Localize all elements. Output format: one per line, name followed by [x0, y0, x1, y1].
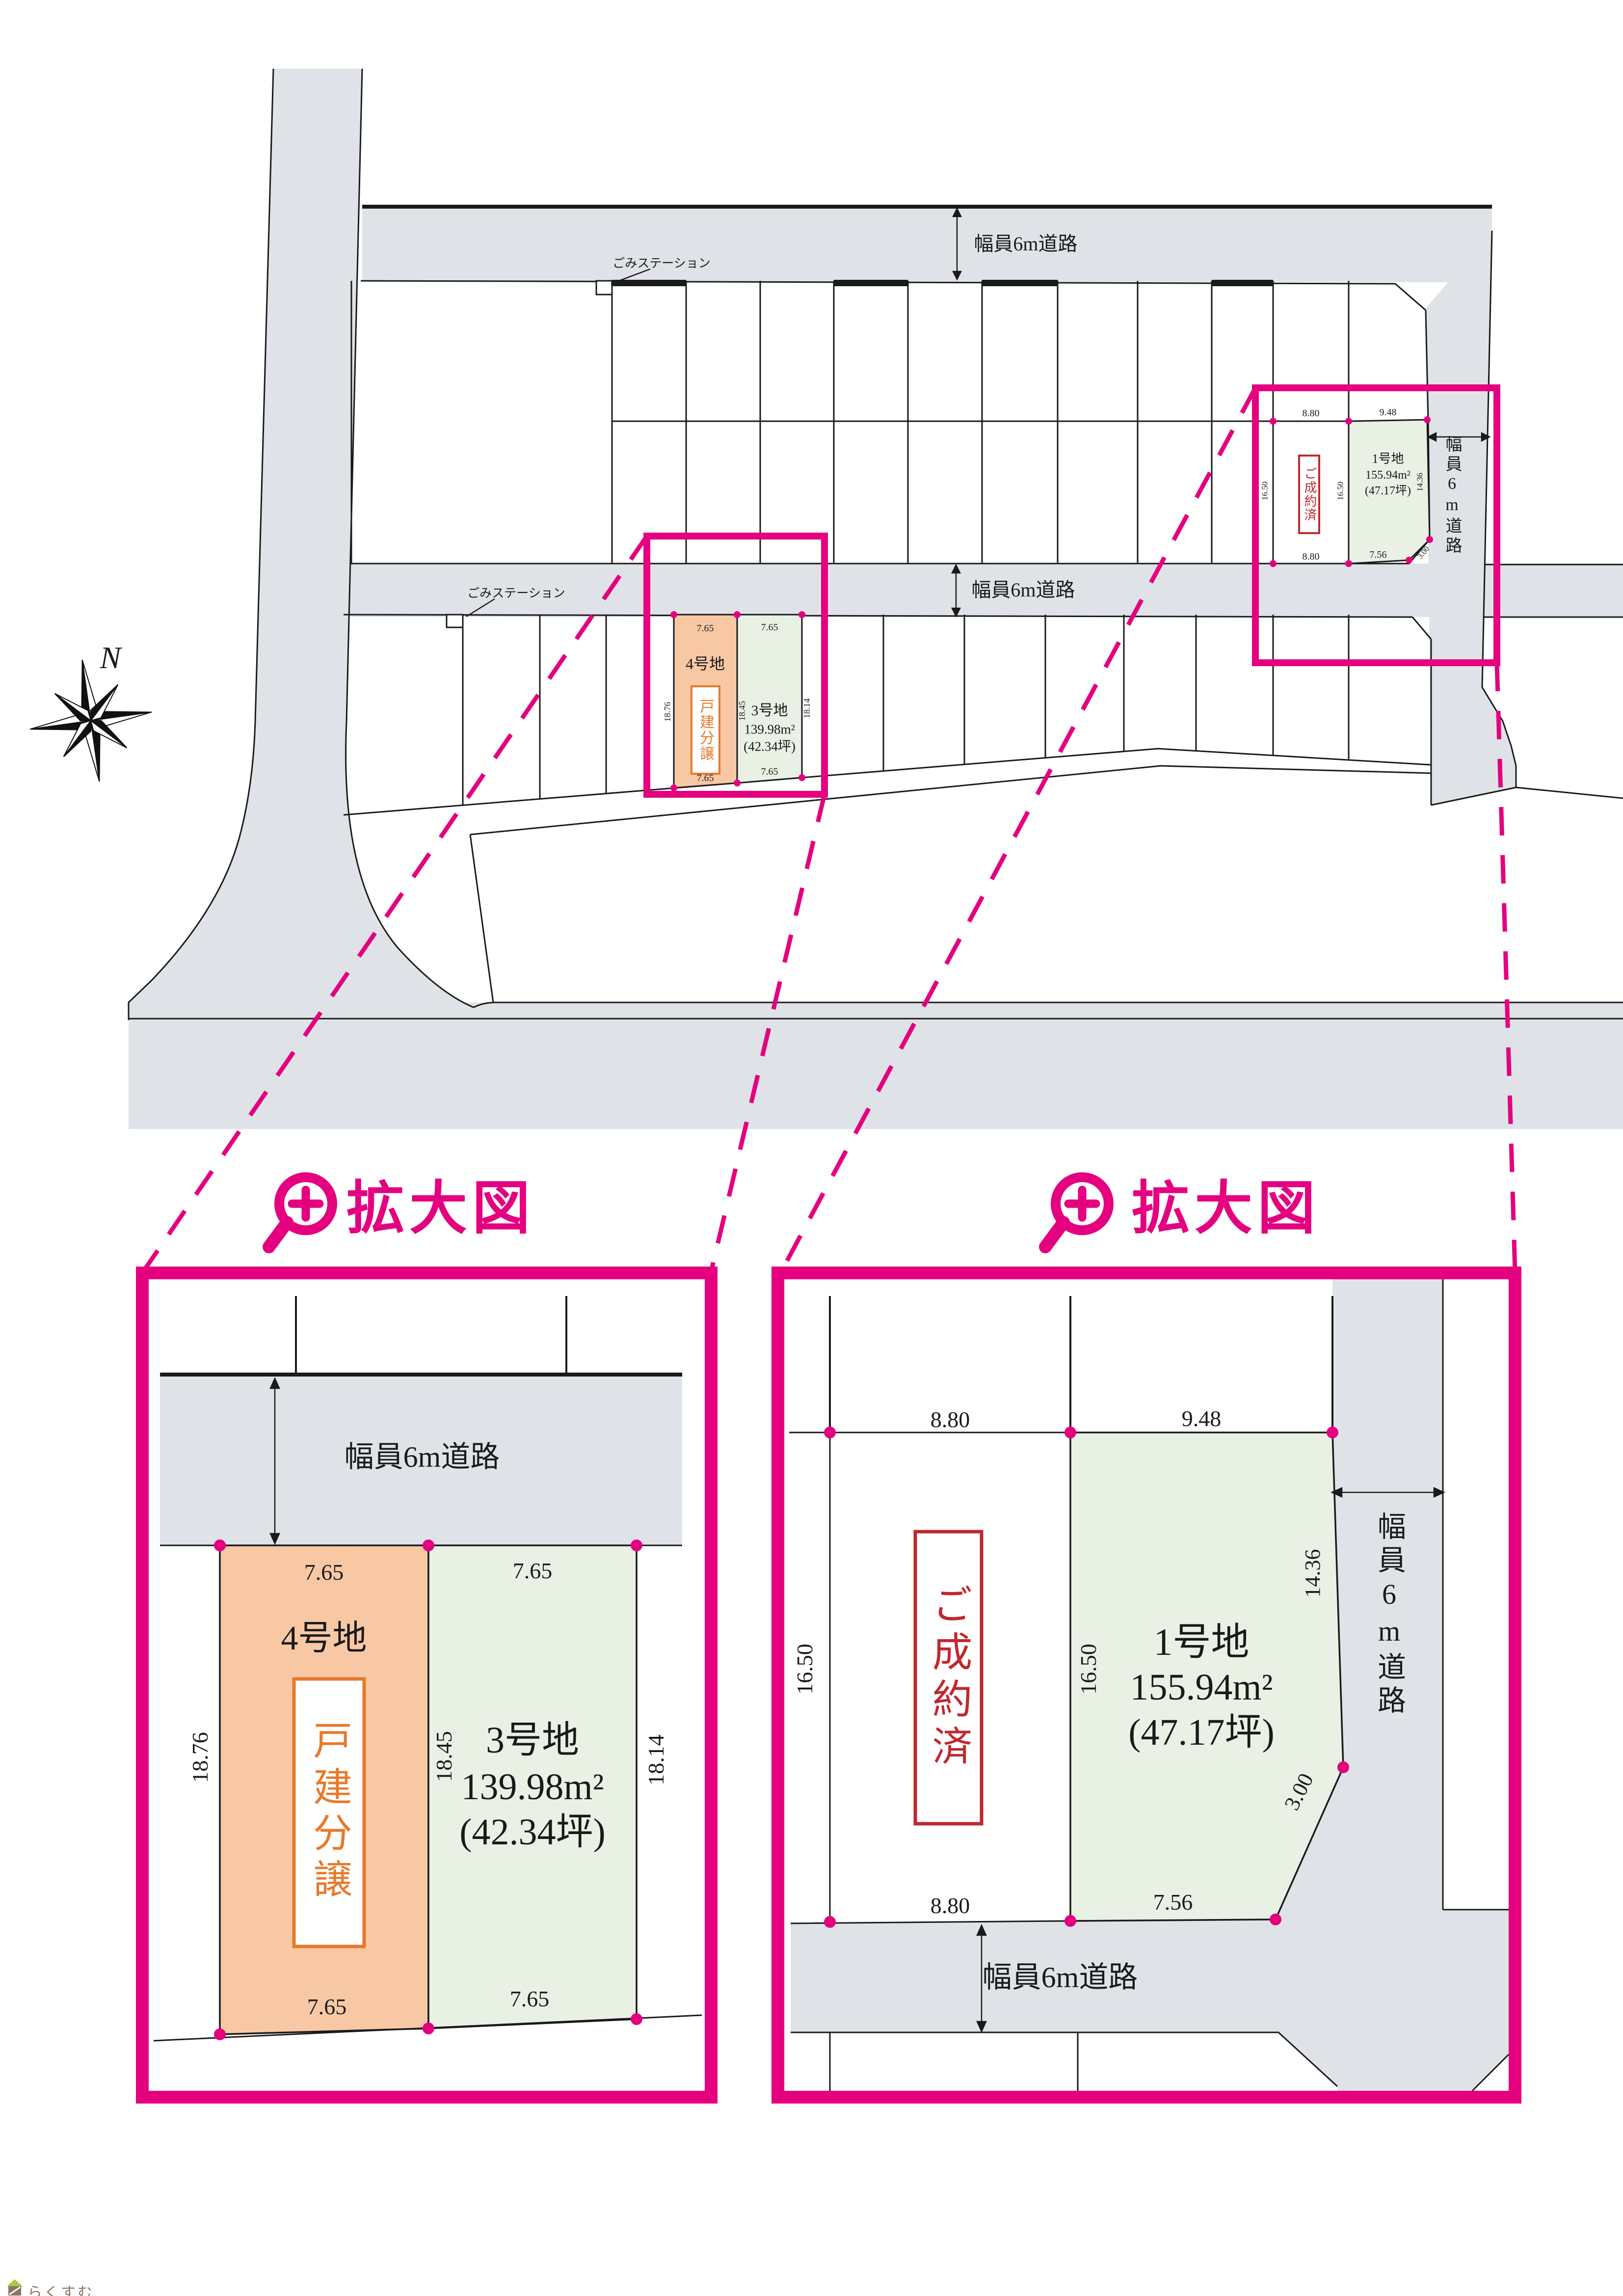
lot1-name-detail: 1号地	[1153, 1623, 1249, 1661]
detail-box-left	[142, 1273, 711, 2097]
lot1-right-dim-site: 14.36	[1416, 473, 1424, 491]
lot4-sale-site: 戸建分譲	[698, 699, 713, 761]
compass-north-label: N	[100, 642, 121, 674]
lot1-tsubo-detail: (47.17坪)	[1128, 1714, 1275, 1751]
lot1-left-dim-detail: 16.50	[1077, 1644, 1100, 1695]
magnifier-plus-icon-left	[269, 1177, 332, 1247]
lot3-bottom-dim-site: 7.65	[761, 767, 778, 777]
lot3-name-detail: 3号地	[486, 1722, 579, 1759]
detail-left-road-label: 幅員6m道路	[345, 1442, 500, 1472]
right-road	[1426, 231, 1516, 805]
lot4-top-dim-detail: 7.65	[304, 1561, 344, 1584]
lot4-left-dim-site: 18.76	[663, 702, 672, 722]
lot3-tsubo-detail: (42.34坪)	[459, 1813, 606, 1851]
lot1-area-site: 155.94m²	[1365, 469, 1410, 481]
roads	[129, 69, 1623, 1129]
lot3-name-site: 3号地	[751, 703, 788, 718]
lot4-sale-text-detail: 戸建分譲	[307, 1720, 350, 1905]
right-road-width-label: 幅員6m道路	[1443, 435, 1460, 556]
lot1-right-dim-detail: 14.36	[1302, 1549, 1324, 1598]
sold-top-dim-detail: 8.80	[931, 1408, 970, 1431]
lot3-tsubo-site: (42.34坪)	[744, 740, 796, 754]
top-road-width-label: 幅員6m道路	[974, 234, 1077, 254]
garbage-station-notch-top	[596, 281, 612, 295]
lot1-area-detail: 155.94m²	[1130, 1669, 1273, 1706]
detail-right-vroad-label: 幅員6m道路	[1375, 1512, 1403, 1719]
lot3-right-dim-site: 18.14	[802, 699, 811, 719]
magnifier-plus-icon-right	[1045, 1177, 1109, 1247]
garbage-station-notch-bottom	[447, 615, 463, 627]
sold-text-detail: ご成約済	[926, 1584, 971, 1772]
lot4-name-detail: 4号地	[281, 1621, 367, 1656]
magnified-view-title-right: 拡大図	[1132, 1180, 1320, 1238]
lot4-bottom-dim-site: 7.65	[697, 773, 714, 783]
lot4-left-dim-detail: 18.76	[189, 1732, 212, 1783]
lot1-bottom-dim-site: 7.56	[1370, 550, 1387, 560]
lot3-bottom-dim-detail: 7.65	[510, 1988, 550, 2010]
lot3-top-dim-detail: 7.65	[513, 1560, 553, 1582]
sold-bottom-dim-detail: 8.80	[931, 1894, 970, 1917]
lot3-site	[737, 615, 802, 783]
lot3-area-site: 139.98m²	[744, 723, 795, 736]
bottom-road-band	[129, 1002, 1623, 1129]
lot1-left-dim-site: 16.50	[1336, 482, 1345, 500]
sold-label-site: ご成約済	[1303, 467, 1316, 522]
lot4-sale-detail: 戸建分譲	[309, 1720, 348, 1905]
sold-left-dim-detail: 16.50	[794, 1644, 816, 1695]
lot34-mid-dim-site: 18.45	[738, 701, 746, 721]
lot1-top-dim-detail: 9.48	[1182, 1407, 1222, 1430]
middle-road-width-label: 幅員6m道路	[971, 580, 1075, 600]
plan-page: 幅員6m道路 幅員6m道路 幅員6m道路 ごみステーション ごみステーション N…	[0, 0, 1623, 2296]
garbage-station-label-bottom: ごみステーション	[467, 588, 565, 600]
sold-left-dim-site: 16.50	[1261, 482, 1269, 500]
garbage-station-label-top: ごみステーション	[612, 258, 711, 270]
sold-text-site: ご成約済	[1303, 467, 1317, 522]
lot4-name-site: 4号地	[686, 656, 725, 672]
brand-logo-text: らくすむ	[27, 2280, 94, 2296]
site-plan-drawing	[0, 0, 1623, 2296]
lot3-area-detail: 139.98m²	[461, 1768, 604, 1806]
magnified-view-title-left: 拡大図	[346, 1180, 535, 1238]
sold-top-dim-site: 8.80	[1303, 408, 1320, 418]
lot3-top-dim-site: 7.65	[761, 622, 778, 632]
compass-rose-icon	[22, 651, 160, 790]
lot4-top-dim-site: 7.65	[697, 623, 714, 633]
detail-right-road-label: 幅員6m道路	[983, 1963, 1138, 1992]
lot4-bottom-dim-detail: 7.65	[307, 1996, 347, 2018]
lot3-right-dim-detail: 18.14	[645, 1734, 667, 1785]
lot4-sale-text: 戸建分譲	[697, 699, 714, 761]
sold-bottom-dim-site: 8.80	[1303, 552, 1320, 562]
lot1-top-dim-site: 9.48	[1380, 407, 1397, 417]
lot1-bottom-dim-detail: 7.56	[1153, 1891, 1193, 1914]
lot1-name-site: 1号地	[1372, 453, 1404, 465]
sold-label-detail: ご成約済	[928, 1584, 968, 1772]
top-road	[362, 207, 1492, 282]
lot34-mid-dim-detail: 18.45	[433, 1731, 455, 1782]
brand-house-icon	[7, 2279, 23, 2296]
lot1-tsubo-site: (47.17坪)	[1365, 485, 1411, 497]
